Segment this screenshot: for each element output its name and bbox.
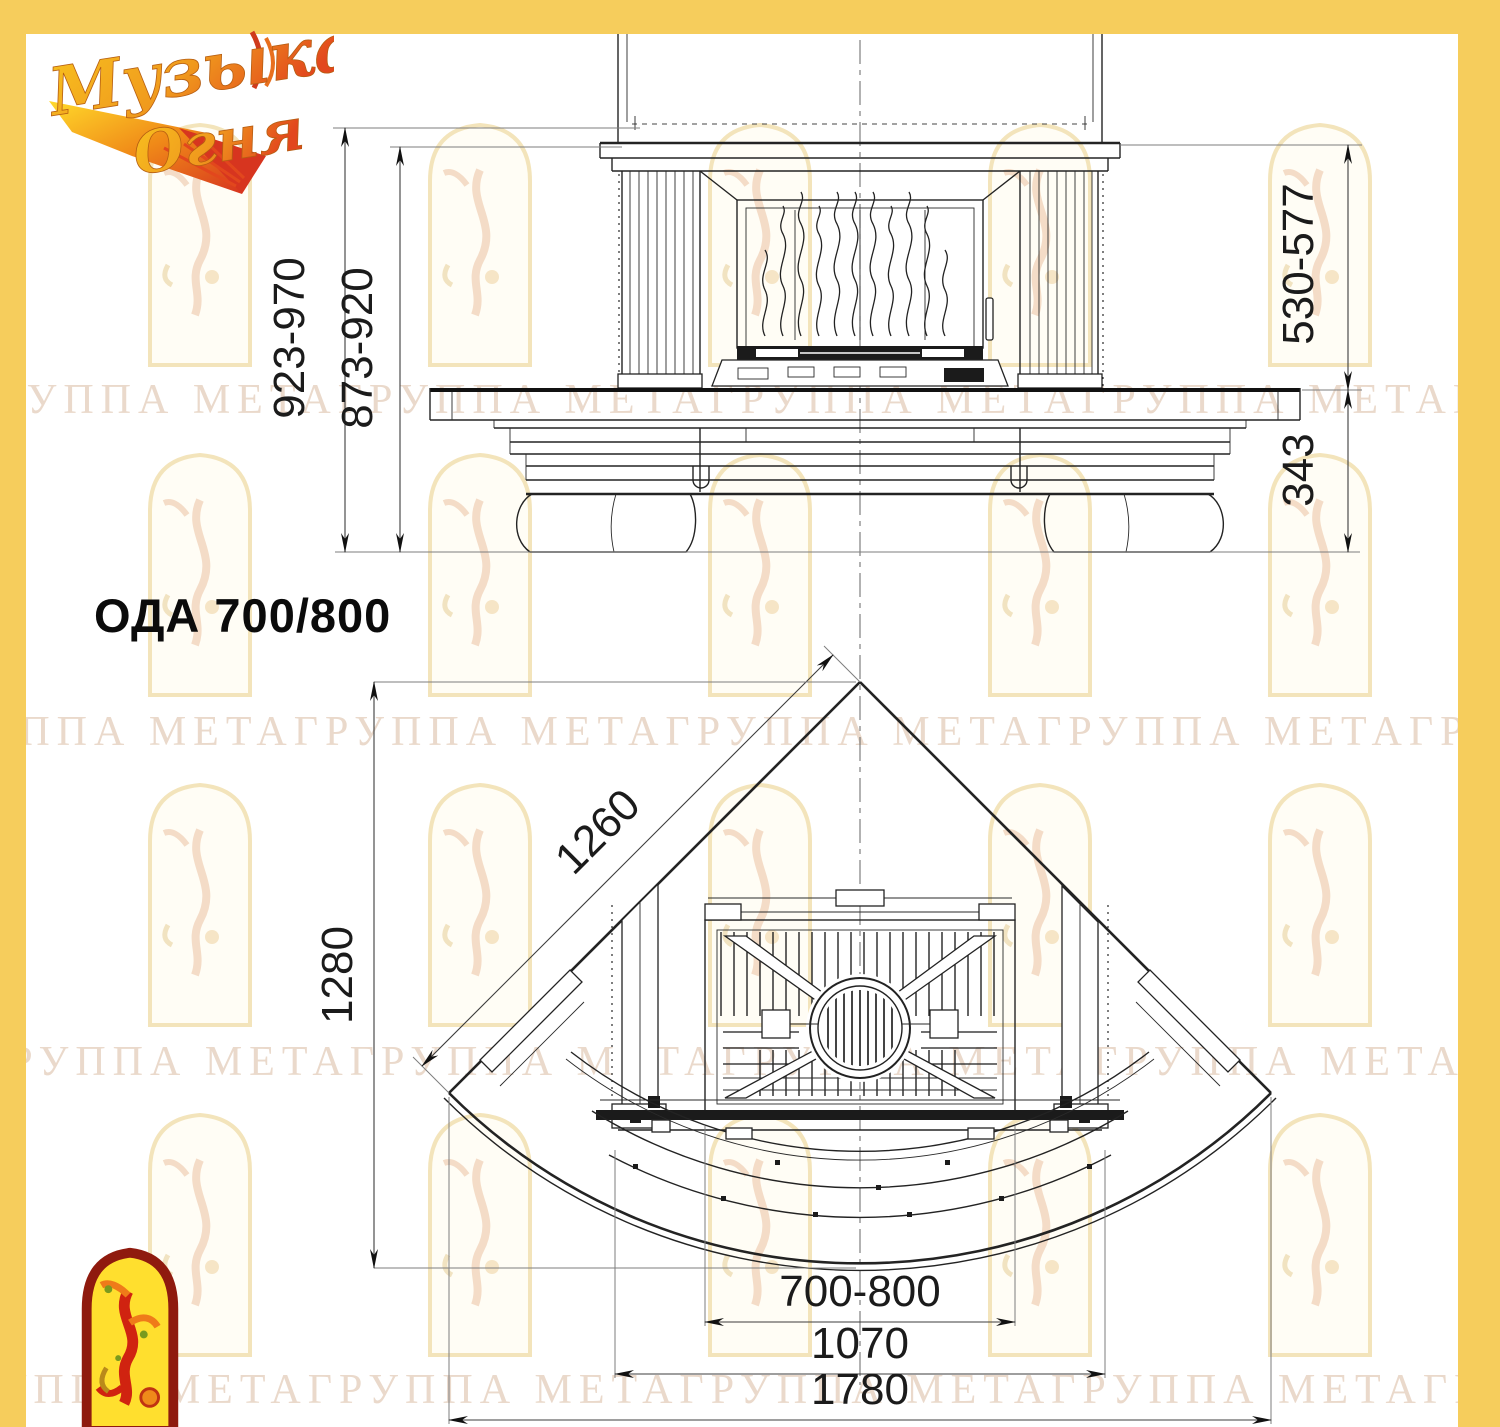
dim-height-overall: 923-970	[265, 257, 314, 418]
technical-drawing: 923-970 873-920 530-577 343	[0, 0, 1500, 1427]
door-handle	[986, 298, 993, 340]
page-border-right	[1458, 0, 1500, 1427]
firebox	[700, 171, 1020, 386]
dim-height-body: 873-920	[333, 267, 382, 428]
page: ГРУППА МЕТАГРУППА МЕТАГРУППА МЕТАГРУППА …	[0, 0, 1500, 1427]
front-view: 923-970 873-920 530-577 343	[265, 34, 1362, 552]
dim-height-upper: 530-577	[1274, 183, 1323, 344]
left-column	[618, 171, 702, 388]
brand-logo: Музыка Огня	[14, 6, 334, 206]
plan-firebox	[705, 904, 1015, 1112]
flame-decor-icon	[763, 192, 948, 336]
dim-height-base: 343	[1274, 433, 1323, 506]
dim-depth: 1280	[313, 926, 362, 1024]
corner-emblem	[78, 1240, 182, 1427]
dim-hearth-width: 1070	[811, 1319, 909, 1368]
dim-overall-width: 1780	[811, 1365, 909, 1414]
bench-and-base	[430, 388, 1300, 552]
dim-side-wall: 1260	[546, 780, 650, 884]
dim-firebox-width: 700-800	[779, 1267, 940, 1316]
page-border-left	[0, 0, 26, 1427]
right-column	[1018, 171, 1103, 388]
front-structure	[430, 34, 1300, 552]
front-dimensions: 923-970 873-920 530-577 343	[265, 128, 1362, 552]
plan-view: 1260 1280 700-800 1070 1780	[313, 646, 1276, 1424]
model-title: ОДА 700/800	[94, 588, 391, 643]
